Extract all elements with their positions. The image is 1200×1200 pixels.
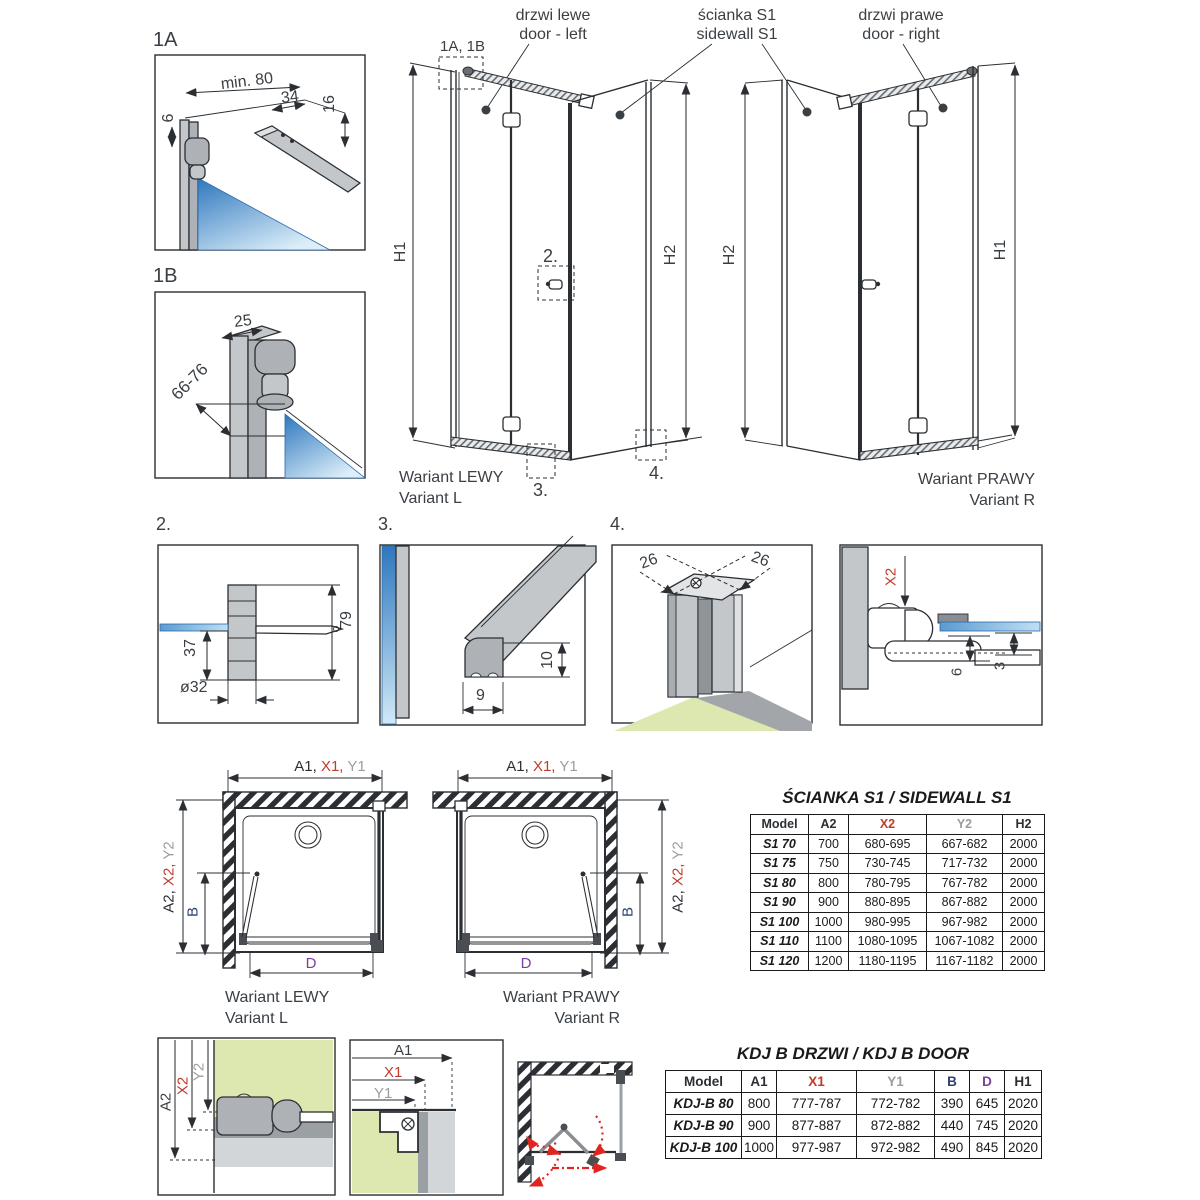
- plan-left-caption-pl: Wariant LEWY: [225, 988, 329, 1009]
- floor-y1: Y1: [374, 1085, 392, 1103]
- cell: 1067-1082: [927, 932, 1003, 952]
- sidewall-table-title: ŚCIANKA S1 / SIDEWALL S1: [750, 788, 1044, 808]
- cell: 490: [935, 1137, 970, 1159]
- plan-right-b: B: [620, 907, 637, 917]
- dim-16: 16: [321, 95, 339, 113]
- cell: 800: [809, 873, 849, 893]
- elev-right-h1: H1: [992, 240, 1010, 260]
- door-col-h1: H1: [1005, 1071, 1042, 1093]
- floor-detail-a1-drawing: [350, 1040, 503, 1195]
- plan-right-x1: X1,: [533, 758, 556, 775]
- table-row: S1 70 700 680-695 667-682 2000: [751, 834, 1045, 854]
- dim-10: 10: [539, 651, 557, 669]
- floor-a2: A2: [158, 1093, 175, 1111]
- sidewall-col-y2: Y2: [927, 815, 1003, 835]
- elevation-right-caption-pl: Wariant PRAWY: [913, 470, 1035, 491]
- table-row: S1 75 750 730-745 717-732 2000: [751, 854, 1045, 874]
- cell: 2000: [1003, 932, 1045, 952]
- plan-left-caption: Wariant LEWY Variant L: [225, 988, 329, 1030]
- floor-detail-a2-drawing: [158, 1038, 335, 1195]
- callout-door-right-en: door - right: [858, 25, 943, 44]
- cell: 777-787: [777, 1093, 857, 1115]
- dim-x2-wall: X2: [883, 568, 900, 586]
- plan-left-y2: Y2: [161, 841, 178, 859]
- table-row: KDJ-B 100 1000 977-987 972-982 490 845 2…: [666, 1137, 1042, 1159]
- cell-model: S1 75: [751, 854, 809, 874]
- cell: 2000: [1003, 951, 1045, 971]
- plan-left-a2: A2,: [161, 890, 178, 913]
- sidewall-col-x2: X2: [849, 815, 927, 835]
- door-col-a1: A1: [742, 1071, 777, 1093]
- table-row: S1 80 800 780-795 767-782 2000: [751, 873, 1045, 893]
- door-table-title: KDJ B DRZWI / KDJ B DOOR: [665, 1044, 1041, 1064]
- plan-left-d: D: [306, 955, 317, 973]
- door-col-x1: X1: [777, 1071, 857, 1093]
- cell: 1000: [742, 1137, 777, 1159]
- cell: 750: [809, 854, 849, 874]
- detail-3-drawing: [380, 536, 596, 725]
- dim-37: 37: [182, 639, 200, 657]
- dim-79: 79: [338, 611, 356, 629]
- dim-o32: ø32: [180, 678, 208, 697]
- elevation-left-caption: Wariant LEWY Variant L: [399, 468, 503, 510]
- plan-right-caption-en: Variant R: [500, 1009, 620, 1030]
- wall-profile-detail-drawing: [840, 545, 1042, 725]
- plan-right-caption: Wariant PRAWY Variant R: [500, 988, 620, 1030]
- detail-1a-label: 1A: [153, 28, 177, 52]
- door-col-y1: Y1: [857, 1071, 935, 1093]
- floor-a1: A1: [394, 1042, 412, 1060]
- floor-y2: Y2: [191, 1063, 208, 1081]
- cell-model: S1 90: [751, 893, 809, 913]
- plan-right-a2: A2,: [670, 890, 687, 913]
- cell: 2020: [1005, 1115, 1042, 1137]
- cell-model: S1 80: [751, 873, 809, 893]
- cell: 872-882: [857, 1115, 935, 1137]
- elevation-right-drawing: [745, 63, 1015, 460]
- plan-left-a1: A1,: [294, 758, 317, 775]
- cell-model: KDJ-B 80: [666, 1093, 742, 1115]
- cell: 900: [809, 893, 849, 913]
- callout-door-right-pl: drzwi prawe: [858, 6, 943, 25]
- cell: 717-732: [927, 854, 1003, 874]
- table-row: S1 110 1100 1080-1095 1067-1082 2000: [751, 932, 1045, 952]
- plan-left-x2: X2,: [161, 864, 178, 887]
- cell: 1080-1095: [849, 932, 927, 952]
- callout-door-right: drzwi prawe door - right: [858, 6, 943, 44]
- cell-model: S1 110: [751, 932, 809, 952]
- plan-left-x1: X1,: [321, 758, 344, 775]
- dim-9: 9: [476, 686, 485, 705]
- plan-left-y1: Y1: [347, 758, 365, 775]
- cell: 1000: [809, 912, 849, 932]
- plan-left-top-dim: A1, X1, Y1: [294, 758, 365, 776]
- cell-model: KDJ-B 90: [666, 1115, 742, 1137]
- door-table: Model A1 X1 Y1 B D H1 KDJ-B 80 800 777-7…: [665, 1070, 1042, 1159]
- cell: 980-995: [849, 912, 927, 932]
- plan-right-y1: Y1: [559, 758, 577, 775]
- cell: 2000: [1003, 873, 1045, 893]
- plan-right-side-dim: A2, X2, Y2: [670, 841, 687, 912]
- plan-left-b: B: [185, 907, 202, 917]
- cell: 767-782: [927, 873, 1003, 893]
- callout-leaders: [482, 44, 948, 120]
- detail-3-label: 3.: [378, 514, 393, 536]
- table-row: KDJ-B 80 800 777-787 772-782 390 645 202…: [666, 1093, 1042, 1115]
- detail-4-drawing: [612, 545, 812, 731]
- cell-model: S1 120: [751, 951, 809, 971]
- sidewall-header-row: Model A2 X2 Y2 H2: [751, 815, 1045, 835]
- ref-4: 4.: [649, 463, 664, 485]
- cell: 2000: [1003, 912, 1045, 932]
- dim-25: 25: [233, 312, 253, 332]
- sidewall-col-h2: H2: [1003, 815, 1045, 835]
- sidewall-col-a2: A2: [809, 815, 849, 835]
- cell: 2020: [1005, 1093, 1042, 1115]
- cell: 700: [809, 834, 849, 854]
- door-col-d: D: [970, 1071, 1005, 1093]
- callout-door-left: drzwi lewe door - left: [516, 6, 591, 44]
- floor-x1: X1: [384, 1064, 402, 1082]
- ref-1a-1b: 1A, 1B: [440, 38, 485, 56]
- door-table-section: KDJ B DRZWI / KDJ B DOOR Model A1 X1 Y1 …: [665, 1044, 1041, 1159]
- cell: 780-795: [849, 873, 927, 893]
- table-row: S1 120 1200 1180-1195 1167-1182 2000: [751, 951, 1045, 971]
- cell-model: S1 70: [751, 834, 809, 854]
- plan-left-caption-en: Variant L: [225, 1009, 329, 1030]
- plan-right-top-dim: A1, X1, Y1: [506, 758, 577, 776]
- cell: 730-745: [849, 854, 927, 874]
- cell: 2000: [1003, 854, 1045, 874]
- elevation-right-caption-en: Variant R: [913, 491, 1035, 512]
- plan-left-side-dim: A2, X2, Y2: [161, 841, 178, 912]
- callout-sidewall-en: sidewall S1: [697, 25, 778, 44]
- cell: 745: [970, 1115, 1005, 1137]
- detail-2-label: 2.: [156, 514, 171, 536]
- cell-model: S1 100: [751, 912, 809, 932]
- dim-34: 34: [280, 88, 300, 108]
- plan-right-a1: A1,: [506, 758, 529, 775]
- cell: 1180-1195: [849, 951, 927, 971]
- elev-right-h2: H2: [721, 245, 739, 265]
- detail-1b-label: 1B: [153, 264, 177, 288]
- cell: 867-882: [927, 893, 1003, 913]
- sidewall-table-section: ŚCIANKA S1 / SIDEWALL S1 Model A2 X2 Y2 …: [750, 788, 1044, 971]
- cell: 667-682: [927, 834, 1003, 854]
- floor-x2: X2: [175, 1077, 192, 1095]
- dim-6: 6: [160, 114, 178, 123]
- door-header-row: Model A1 X1 Y1 B D H1: [666, 1071, 1042, 1093]
- door-col-b: B: [935, 1071, 970, 1093]
- cell: 772-782: [857, 1093, 935, 1115]
- table-row: S1 100 1000 980-995 967-982 2000: [751, 912, 1045, 932]
- callout-sidewall-pl: ścianka S1: [697, 6, 778, 25]
- dim-3-wall: 3: [992, 662, 1009, 670]
- technical-drawing-sheet: drzwi lewe door - left ścianka S1 sidewa…: [0, 0, 1200, 1200]
- door-col-model: Model: [666, 1071, 742, 1093]
- elev-left-h1: H1: [392, 242, 410, 262]
- callout-door-left-en: door - left: [516, 25, 591, 44]
- cell: 880-895: [849, 893, 927, 913]
- cell: 967-982: [927, 912, 1003, 932]
- cell: 800: [742, 1093, 777, 1115]
- plan-right-x2: X2,: [670, 864, 687, 887]
- table-row: S1 90 900 880-895 867-882 2000: [751, 893, 1045, 913]
- sidewall-table: Model A2 X2 Y2 H2 S1 70 700 680-695 667-…: [750, 814, 1045, 971]
- corner-fold-schematic: [518, 1062, 632, 1186]
- cell: 440: [935, 1115, 970, 1137]
- cell: 877-887: [777, 1115, 857, 1137]
- cell: 977-987: [777, 1137, 857, 1159]
- ref-3: 3.: [533, 480, 548, 502]
- cell: 1200: [809, 951, 849, 971]
- elevation-right-caption: Wariant PRAWY Variant R: [913, 470, 1035, 512]
- elev-left-h2: H2: [662, 245, 680, 265]
- dim-6-wall: 6: [949, 668, 966, 676]
- table-row: KDJ-B 90 900 877-887 872-882 440 745 202…: [666, 1115, 1042, 1137]
- elevation-left-caption-pl: Wariant LEWY: [399, 468, 503, 489]
- cell: 680-695: [849, 834, 927, 854]
- plan-right-caption-pl: Wariant PRAWY: [500, 988, 620, 1009]
- ref-2: 2.: [543, 246, 558, 268]
- cell: 645: [970, 1093, 1005, 1115]
- cell-model: KDJ-B 100: [666, 1137, 742, 1159]
- cell: 1167-1182: [927, 951, 1003, 971]
- cell: 1100: [809, 932, 849, 952]
- cell: 845: [970, 1137, 1005, 1159]
- callout-door-left-pl: drzwi lewe: [516, 6, 591, 25]
- elevation-left-caption-en: Variant L: [399, 489, 503, 510]
- sidewall-col-model: Model: [751, 815, 809, 835]
- plan-right-y2: Y2: [670, 841, 687, 859]
- cell: 2020: [1005, 1137, 1042, 1159]
- plan-right-d: D: [521, 955, 532, 973]
- detail-4-label: 4.: [610, 514, 625, 536]
- cell: 390: [935, 1093, 970, 1115]
- callout-sidewall: ścianka S1 sidewall S1: [697, 6, 778, 44]
- cell: 2000: [1003, 893, 1045, 913]
- plan-left-drawing: [176, 770, 407, 978]
- cell: 972-982: [857, 1137, 935, 1159]
- cell: 2000: [1003, 834, 1045, 854]
- plan-right-drawing: [433, 770, 669, 978]
- cell: 900: [742, 1115, 777, 1137]
